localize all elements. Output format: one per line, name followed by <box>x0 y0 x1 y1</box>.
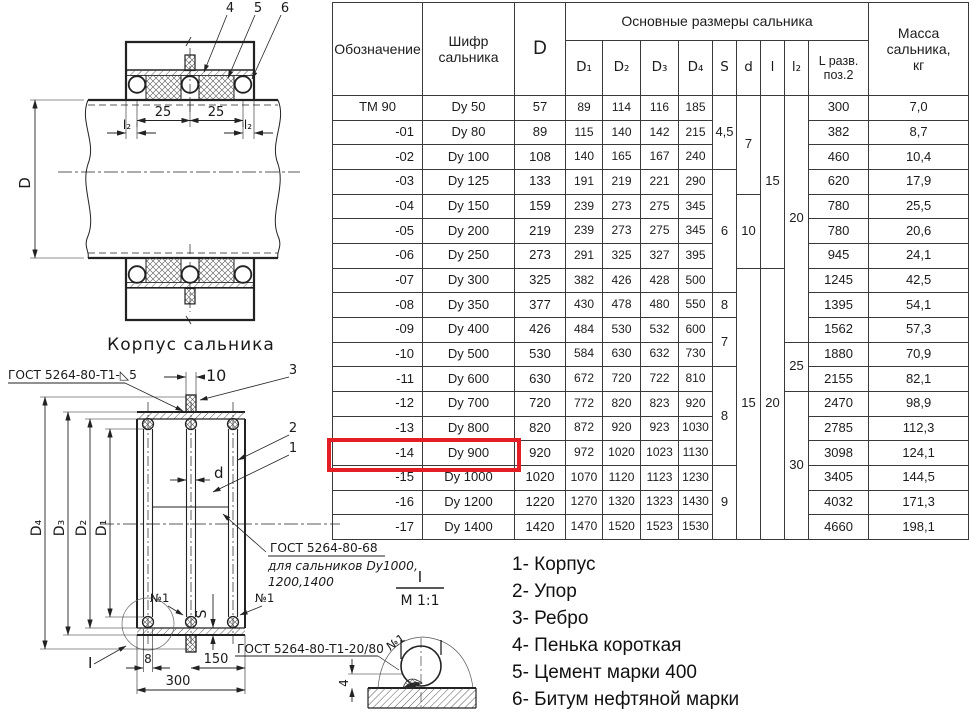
weld-note-line1: ГОСТ 5264-80-68 <box>270 541 378 555</box>
table-cell: 1030 <box>679 416 713 441</box>
table-cell: Dy 150 <box>423 194 515 219</box>
table-cell: 730 <box>679 342 713 367</box>
table-body: ТМ 90Dy 5057891141161854,5715203007,0-01… <box>333 96 969 540</box>
table-cell: Dy 250 <box>423 243 515 268</box>
table-cell: 291 <box>566 243 603 268</box>
table-row: -04Dy 1501592392732753451078025,5 <box>333 194 969 219</box>
tie-rods <box>122 402 239 650</box>
table-cell: 2155 <box>809 367 869 392</box>
table-cell: 140 <box>603 120 641 145</box>
table-cell: -15 <box>333 465 423 490</box>
table-cell: 460 <box>809 145 869 170</box>
table-cell: 112,3 <box>869 416 969 441</box>
table-cell: 632 <box>641 342 679 367</box>
table-cell: 1880 <box>809 342 869 367</box>
table-cell: 165 <box>603 145 641 170</box>
col-header-l: l <box>761 41 785 96</box>
table-cell: Dy 900 <box>423 441 515 466</box>
table-cell: 484 <box>566 317 603 342</box>
table-cell: 133 <box>515 169 566 194</box>
table-cell: -17 <box>333 515 423 540</box>
table-cell: Dy 1400 <box>423 515 515 540</box>
table-cell: Dy 1000 <box>423 465 515 490</box>
table-cell: 532 <box>641 317 679 342</box>
table-cell: -16 <box>333 490 423 515</box>
table-cell: 1020 <box>603 441 641 466</box>
table-cell: 630 <box>603 342 641 367</box>
table-cell: 395 <box>679 243 713 268</box>
table-row: -06Dy 25027329132532739594524,1 <box>333 243 969 268</box>
table-cell: 20 <box>761 268 785 539</box>
table-cell: 327 <box>641 243 679 268</box>
table-cell: 25 <box>785 342 809 391</box>
table-cell: 219 <box>515 219 566 244</box>
weld-note-line2: для сальников Dy1000, <box>267 559 418 573</box>
table-cell: 720 <box>515 391 566 416</box>
table-cell: 144,5 <box>869 465 969 490</box>
table-cell: 377 <box>515 293 566 318</box>
table-cell: Dy 80 <box>423 120 515 145</box>
col-header-D1: D₁ <box>566 41 603 96</box>
col-header-D3: D₃ <box>641 41 679 96</box>
table-cell: -04 <box>333 194 423 219</box>
table-cell: 185 <box>679 96 713 121</box>
table-cell: 42,5 <box>869 268 969 293</box>
col-header-d: d <box>737 41 761 96</box>
table-cell: -13 <box>333 416 423 441</box>
table-cell: 1270 <box>566 490 603 515</box>
table-cell: 273 <box>603 219 641 244</box>
table-cell: 3405 <box>809 465 869 490</box>
table-cell: Dy 500 <box>423 342 515 367</box>
table-cell: 823 <box>641 391 679 416</box>
table-cell: 239 <box>566 219 603 244</box>
col-header-group: Основные размеры сальника <box>566 3 869 41</box>
table-row: -15Dy 10001020107011201123123093405144,5 <box>333 465 969 490</box>
table-cell: 1070 <box>566 465 603 490</box>
table-cell: 10,4 <box>869 145 969 170</box>
table-cell: 872 <box>566 416 603 441</box>
table-cell: 426 <box>603 268 641 293</box>
weld-label-bottom: ГОСТ 5264-80-Т1-20/80 <box>237 642 384 656</box>
dim-d-label: d <box>214 464 224 482</box>
table-cell: 426 <box>515 317 566 342</box>
detail-weld-no1: №1 <box>384 631 408 654</box>
table-cell: 630 <box>515 367 566 392</box>
table-cell: -09 <box>333 317 423 342</box>
table-cell: 171,3 <box>869 490 969 515</box>
table-cell: 219 <box>603 169 641 194</box>
table-cell: 1245 <box>809 268 869 293</box>
flange-body <box>100 395 340 652</box>
table-cell: 1420 <box>515 515 566 540</box>
table-cell: 780 <box>809 219 869 244</box>
dim-S-label: S <box>194 609 210 618</box>
detail-scale: М 1:1 <box>400 593 439 609</box>
table-cell: 1562 <box>809 317 869 342</box>
table-cell: ТМ 90 <box>333 96 423 121</box>
callout-5: 5 <box>254 1 262 16</box>
housing-body-bottom <box>126 258 254 324</box>
dim-8-label: 8 <box>144 652 152 666</box>
table-cell: 167 <box>641 145 679 170</box>
table-cell: 54,1 <box>869 293 969 318</box>
housing-section-drawing: 4 5 6 25 25 l₂ l₂ D Корпус сальника <box>0 0 332 358</box>
table-cell: 672 <box>566 367 603 392</box>
table-cell: 1220 <box>515 490 566 515</box>
table-cell: 478 <box>603 293 641 318</box>
table-cell: 275 <box>641 219 679 244</box>
table-wrap: Обозначение Шифр сальника D Основные раз… <box>332 2 968 540</box>
table-cell: 7 <box>713 317 737 366</box>
dim-D1-label: D₁ <box>94 520 110 536</box>
table-cell: 345 <box>679 219 713 244</box>
table-cell: 275 <box>641 194 679 219</box>
dim-D-label: D <box>16 177 34 189</box>
callout-3: 3 <box>289 363 297 378</box>
table-cell: 923 <box>641 416 679 441</box>
table-cell: Dy 400 <box>423 317 515 342</box>
legend-item: 6- Битум нефтяной марки <box>512 686 739 712</box>
table-row: -13Dy 80082087292092310302785112,3 <box>333 416 969 441</box>
dim-D2-label: D₂ <box>74 520 90 536</box>
page: 4 5 6 25 25 l₂ l₂ D Корпус сальника <box>0 0 970 712</box>
table-cell: 114 <box>603 96 641 121</box>
header-row-1: Обозначение Шифр сальника D Основные раз… <box>333 3 969 41</box>
table-cell: 500 <box>679 268 713 293</box>
table-cell: -12 <box>333 391 423 416</box>
table-cell: 428 <box>641 268 679 293</box>
table-cell: Dy 700 <box>423 391 515 416</box>
table-cell: 290 <box>679 169 713 194</box>
table-cell: 1123 <box>641 465 679 490</box>
weld-label-top: ГОСТ 5264-80-Т1-◺5 <box>8 368 137 382</box>
table-cell: 382 <box>566 268 603 293</box>
weld-no1-right: №1 <box>255 591 274 605</box>
legend: 1- Корпус 2- Упор 3- Ребро 4- Пенька кор… <box>512 551 739 712</box>
table-cell: 480 <box>641 293 679 318</box>
table-cell: 30 <box>785 391 809 539</box>
col-header-L: L разв. поз.2 <box>809 41 869 96</box>
dim-300-label: 300 <box>166 674 191 689</box>
table-cell: 10 <box>737 194 761 268</box>
table-cell: 530 <box>603 317 641 342</box>
table-cell: 600 <box>679 317 713 342</box>
table-cell: 70,9 <box>869 342 969 367</box>
callout-6: 6 <box>281 1 289 16</box>
table-cell: 1230 <box>679 465 713 490</box>
table-cell: 430 <box>566 293 603 318</box>
table-cell: 810 <box>679 367 713 392</box>
table-cell: -07 <box>333 268 423 293</box>
table-cell: -01 <box>333 120 423 145</box>
table-cell: 1470 <box>566 515 603 540</box>
table-cell: 1523 <box>641 515 679 540</box>
table-row: -05Dy 20021923927327534578020,6 <box>333 219 969 244</box>
table-cell: 1430 <box>679 490 713 515</box>
dim-150-label: 150 <box>204 652 229 667</box>
table-cell: 1320 <box>603 490 641 515</box>
table-cell: 2785 <box>809 416 869 441</box>
table-cell: 57,3 <box>869 317 969 342</box>
table-cell: -11 <box>333 367 423 392</box>
table-cell: 15 <box>761 96 785 269</box>
table-cell: 198,1 <box>869 515 969 540</box>
table-row: -03Dy 125133191219221290662017,9 <box>333 169 969 194</box>
table-cell: 239 <box>566 194 603 219</box>
callout-2: 2 <box>289 421 297 436</box>
table-cell: Dy 350 <box>423 293 515 318</box>
table-cell: 584 <box>566 342 603 367</box>
table-cell: 722 <box>641 367 679 392</box>
table-row: -14Dy 9009209721020102311303098124,1 <box>333 441 969 466</box>
table-cell: 7 <box>737 96 761 195</box>
table-cell: -03 <box>333 169 423 194</box>
dim-D3-label: D₃ <box>52 520 68 536</box>
table-cell: 20,6 <box>869 219 969 244</box>
table-cell: 8,7 <box>869 120 969 145</box>
table-cell: Dy 1200 <box>423 490 515 515</box>
dimension-25 <box>137 100 243 127</box>
detail-dim-4: 4 <box>337 679 351 687</box>
table-cell: 1530 <box>679 515 713 540</box>
table-cell: 8 <box>713 367 737 466</box>
table-cell: -08 <box>333 293 423 318</box>
col-header-l2: l₂ <box>785 41 809 96</box>
table-cell: 550 <box>679 293 713 318</box>
weld-no1-left: №1 <box>150 591 169 605</box>
table-cell: 57 <box>515 96 566 121</box>
table-cell: 325 <box>603 243 641 268</box>
table-cell: 972 <box>566 441 603 466</box>
table-row: -01Dy 80891151401422153828,7 <box>333 120 969 145</box>
table-row: -11Dy 6006306727207228108215582,1 <box>333 367 969 392</box>
weld-note-line3: 1200,1400 <box>268 575 334 589</box>
table-cell: 221 <box>641 169 679 194</box>
table-cell: 780 <box>809 194 869 219</box>
table-cell: Dy 300 <box>423 268 515 293</box>
table-cell: 15 <box>737 268 761 539</box>
table-cell: 191 <box>566 169 603 194</box>
dimensions-table: Обозначение Шифр сальника D Основные раз… <box>332 2 969 540</box>
legend-item: 2- Упор <box>512 578 739 605</box>
table-row: -10Dy 50053058463063273025188070,9 <box>333 342 969 367</box>
table-cell: 116 <box>641 96 679 121</box>
table-cell: 8 <box>713 293 737 318</box>
dimension-10 <box>164 372 204 395</box>
table-cell: 1020 <box>515 465 566 490</box>
table-cell: 24,1 <box>869 243 969 268</box>
dim-l2-label-b: l₂ <box>244 118 252 132</box>
table-cell: 89 <box>515 120 566 145</box>
callout-1: 1 <box>289 441 297 456</box>
table-cell: 920 <box>515 441 566 466</box>
table-cell: 620 <box>809 169 869 194</box>
detail-callout-label: I <box>88 654 92 672</box>
table-cell: 820 <box>515 416 566 441</box>
table-cell: 273 <box>515 243 566 268</box>
table-cell: 240 <box>679 145 713 170</box>
table-cell: 215 <box>679 120 713 145</box>
table-cell: 720 <box>603 367 641 392</box>
table-row: -16Dy 1200122012701320132314304032171,3 <box>333 490 969 515</box>
table-cell: 1120 <box>603 465 641 490</box>
table-cell: Dy 125 <box>423 169 515 194</box>
table-cell: 382 <box>809 120 869 145</box>
legend-item: 5- Цемент марки 400 <box>512 659 739 686</box>
table-row: -09Dy 4004264845305326007156257,3 <box>333 317 969 342</box>
table-cell: 4032 <box>809 490 869 515</box>
table-cell: 4660 <box>809 515 869 540</box>
table-row: -02Dy 10010814016516724046010,4 <box>333 145 969 170</box>
col-header-D4: D₄ <box>679 41 713 96</box>
detail-label: I <box>418 568 422 586</box>
dim-25-label-b: 25 <box>208 105 225 120</box>
table-cell: -10 <box>333 342 423 367</box>
table-cell: 6 <box>713 169 737 292</box>
table-cell: 1130 <box>679 441 713 466</box>
table-cell: Dy 800 <box>423 416 515 441</box>
table-cell: 4,5 <box>713 96 737 170</box>
table-cell: Dy 100 <box>423 145 515 170</box>
dim-25-label-a: 25 <box>155 105 172 120</box>
table-cell: 89 <box>566 96 603 121</box>
table-cell: 98,9 <box>869 391 969 416</box>
col-header-mass: Масса сальника, кг <box>869 3 969 96</box>
table-cell: 124,1 <box>869 441 969 466</box>
col-header-D: D <box>515 3 566 96</box>
table-cell: 1023 <box>641 441 679 466</box>
table-cell: 325 <box>515 268 566 293</box>
table-row: -17Dy 1400142014701520152315304660198,1 <box>333 515 969 540</box>
table-cell: -02 <box>333 145 423 170</box>
table-row: -07Dy 3003253824264285001520124542,5 <box>333 268 969 293</box>
table-row: ТМ 90Dy 5057891141161854,5715203007,0 <box>333 96 969 121</box>
legend-item: 3- Ребро <box>512 605 739 632</box>
table-cell: -05 <box>333 219 423 244</box>
table-cell: 140 <box>566 145 603 170</box>
table-cell: 25,5 <box>869 194 969 219</box>
table-row: -12Dy 70072077282082392030247098,9 <box>333 391 969 416</box>
legend-item: 4- Пенька короткая <box>512 632 739 659</box>
table-cell: 82,1 <box>869 367 969 392</box>
table-cell: Dy 50 <box>423 96 515 121</box>
table-row: -08Dy 3503774304784805508139554,1 <box>333 293 969 318</box>
table-cell: 1520 <box>603 515 641 540</box>
table-cell: 345 <box>679 194 713 219</box>
table-cell: 142 <box>641 120 679 145</box>
table-cell: 1323 <box>641 490 679 515</box>
dim-l2-label-a: l₂ <box>123 118 131 132</box>
col-header-D2: D₂ <box>603 41 641 96</box>
table-cell: 7,0 <box>869 96 969 121</box>
table-cell: 159 <box>515 194 566 219</box>
col-header-S: S <box>713 41 737 96</box>
table-cell: 920 <box>603 416 641 441</box>
col-header-designation: Обозначение <box>333 3 423 96</box>
table-cell: 20 <box>785 96 809 343</box>
table-cell: Dy 600 <box>423 367 515 392</box>
table-cell: 108 <box>515 145 566 170</box>
table-cell: Dy 200 <box>423 219 515 244</box>
table-cell: -06 <box>333 243 423 268</box>
table-cell: 273 <box>603 194 641 219</box>
table-cell: 2470 <box>809 391 869 416</box>
table-cell: -14 <box>333 441 423 466</box>
table-cell: 115 <box>566 120 603 145</box>
table-cell: 17,9 <box>869 169 969 194</box>
table-cell: 300 <box>809 96 869 121</box>
table-cell: 9 <box>713 465 737 539</box>
dim-10-label: 10 <box>206 366 226 385</box>
table-cell: 772 <box>566 391 603 416</box>
table-cell: 530 <box>515 342 566 367</box>
table-cell: 820 <box>603 391 641 416</box>
table-cell: 1395 <box>809 293 869 318</box>
table-cell: 920 <box>679 391 713 416</box>
col-header-code: Шифр сальника <box>423 3 515 96</box>
table-cell: 945 <box>809 243 869 268</box>
table-cell: 3098 <box>809 441 869 466</box>
dim-D4-label: D₄ <box>29 519 45 536</box>
dimension-D <box>30 100 84 258</box>
legend-item: 1- Корпус <box>512 551 739 578</box>
callout-4: 4 <box>226 1 234 16</box>
